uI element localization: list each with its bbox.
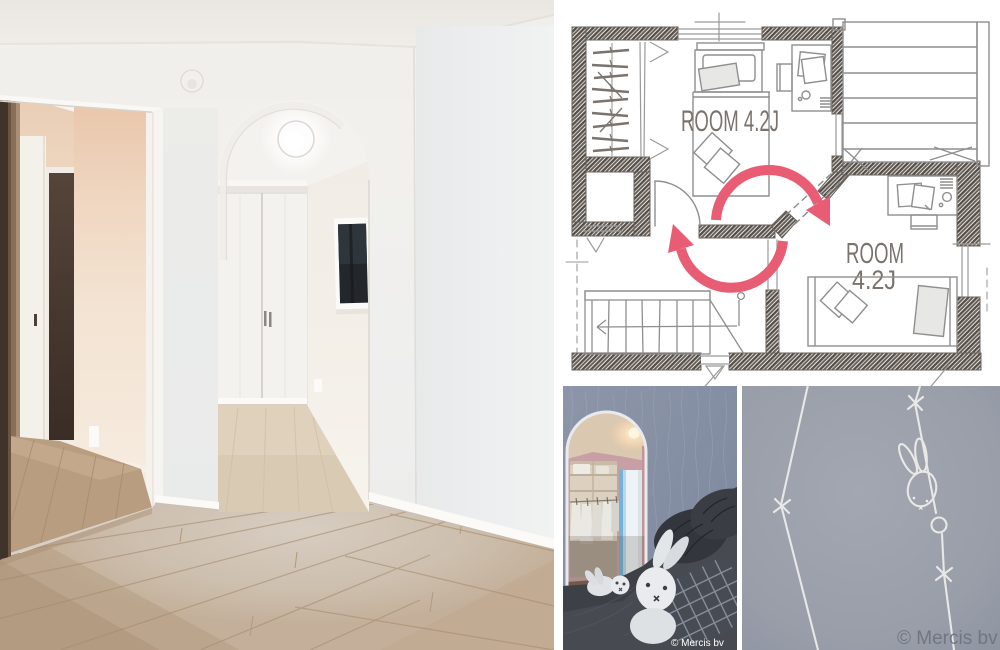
svg-text:© Mercis bv: © Mercis bv — [897, 628, 998, 649]
svg-text:ROOM 4.2J: ROOM 4.2J — [681, 105, 779, 138]
svg-text:4.2J: 4.2J — [852, 265, 896, 295]
svg-text:© Mercis bv: © Mercis bv — [671, 638, 724, 649]
